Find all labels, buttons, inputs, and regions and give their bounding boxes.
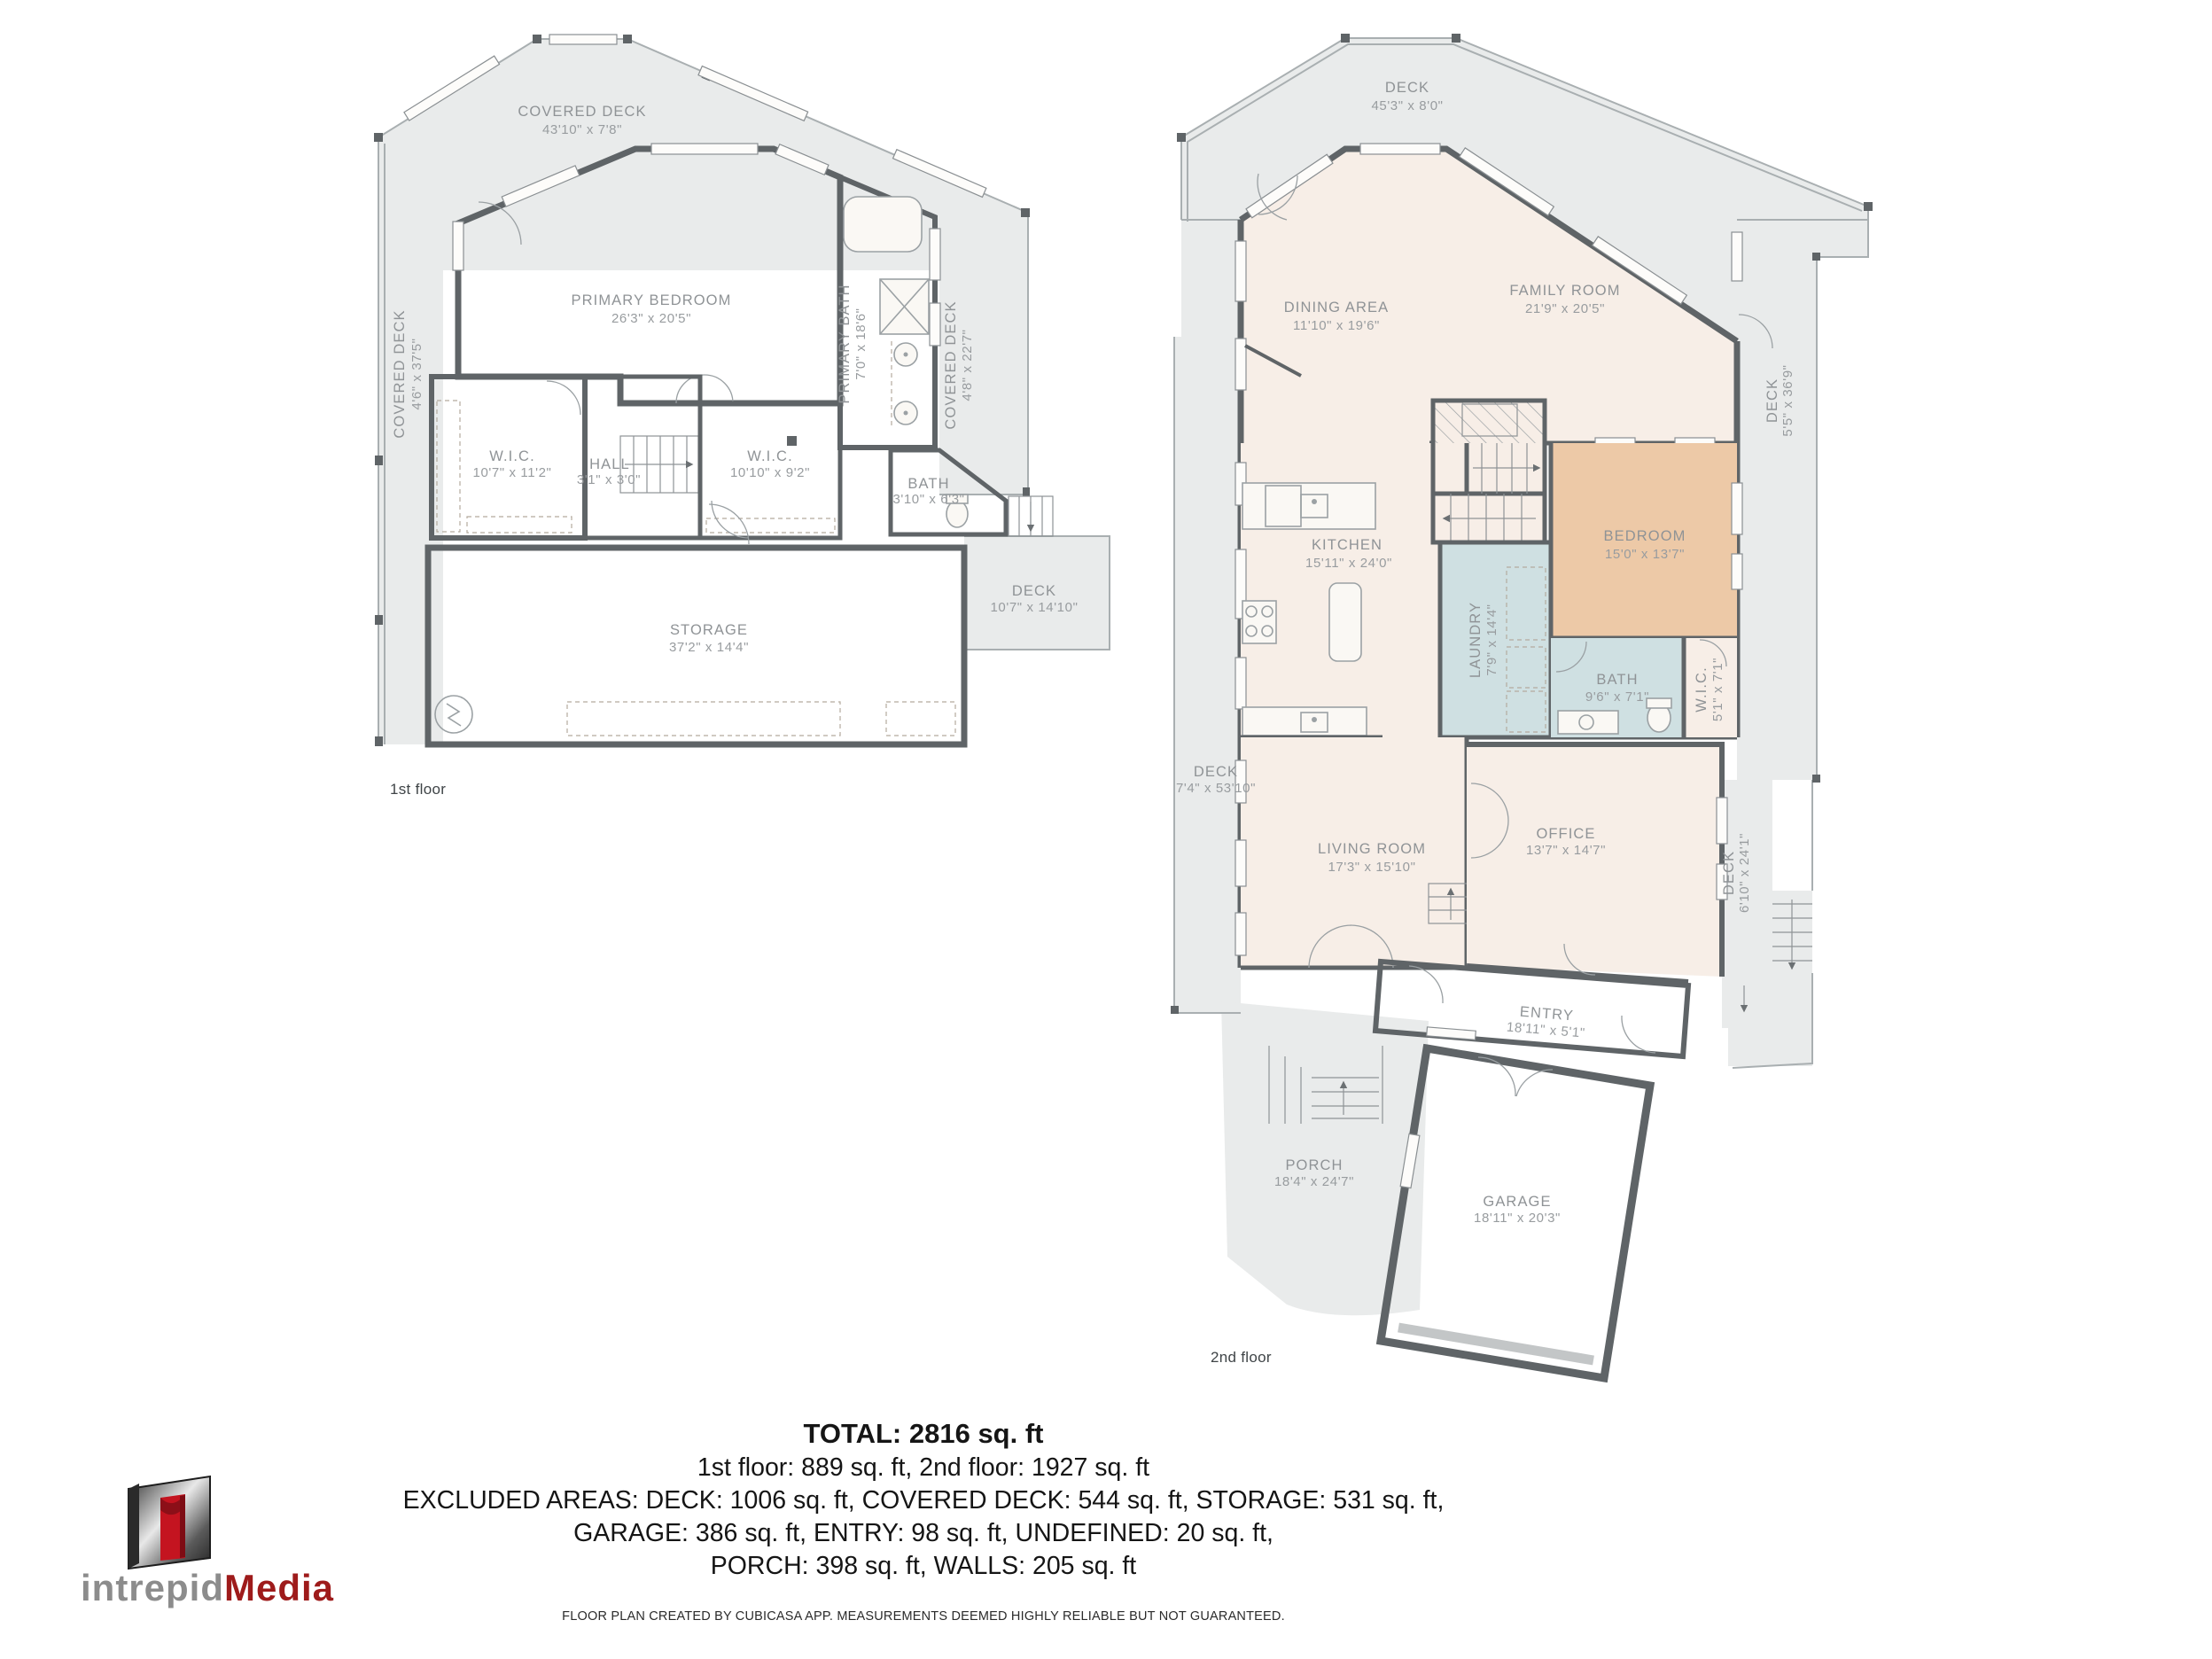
- room-dims: 18'11" x 20'3": [1474, 1211, 1561, 1226]
- intrepid-media-logo: intrepidMedia: [75, 1471, 359, 1613]
- room-label: HALL: [589, 456, 630, 472]
- floor-plan-page: COVERED DECK 43'10" x 7'8" PRIMARY BEDRO…: [0, 0, 2212, 1659]
- room-label: OFFICE: [1536, 826, 1595, 842]
- room-label: BATH: [907, 476, 949, 492]
- room-dims: 5'5" x 36'9": [1780, 364, 1795, 436]
- room-label: KITCHEN: [1312, 537, 1382, 553]
- deck-stairs: [1009, 496, 1053, 536]
- room-dims: 37'2" x 14'4": [669, 640, 749, 655]
- logo-word-red: Media: [224, 1567, 334, 1608]
- logo-cube-icon: [129, 1476, 210, 1569]
- undefined-hatched-area: [1433, 401, 1545, 443]
- room-label: STORAGE: [670, 622, 748, 638]
- floor-label-2nd: 2nd floor: [1211, 1349, 1272, 1366]
- room-dims: 11'10" x 19'6": [1293, 318, 1380, 333]
- svg-text:intrepidMedia: intrepidMedia: [81, 1567, 334, 1608]
- room-label: COVERED DECK: [943, 300, 959, 429]
- room-dims: 15'11" x 24'0": [1305, 556, 1392, 571]
- room-label: PRIMARY BEDROOM: [572, 292, 732, 308]
- first-floor-plan: COVERED DECK 43'10" x 7'8" PRIMARY BEDRO…: [374, 35, 1110, 798]
- kitchen-counter: [1242, 483, 1375, 529]
- vanity: [1558, 711, 1618, 734]
- room-dims: 18'4" x 24'7": [1274, 1174, 1354, 1189]
- room-label: W.I.C.: [489, 448, 535, 464]
- room-dims: 7'9" x 14'4": [1484, 604, 1499, 675]
- room-dims: 18'11" x 5'1": [1506, 1020, 1585, 1041]
- second-floor-plan: DECK 45'3" x 8'0" DINING AREA 11'10" x 1…: [1171, 34, 1873, 1378]
- room-dims: 4'6" x 37'5": [409, 338, 424, 409]
- room-label: DECK: [1721, 851, 1737, 895]
- room-dims: 10'7" x 11'2": [473, 465, 552, 480]
- room-label: DECK: [1764, 378, 1780, 423]
- room-dims: 10'10" x 9'2": [730, 465, 810, 480]
- excluded-areas-3: PORCH: 398 sq. ft, WALLS: 205 sq. ft: [347, 1550, 1499, 1583]
- room-label: GARAGE: [1483, 1194, 1551, 1210]
- room-label: W.I.C.: [1694, 666, 1710, 713]
- room-dims: 43'10" x 7'8": [542, 122, 622, 137]
- excluded-areas-2: GARAGE: 386 sq. ft, ENTRY: 98 sq. ft, UN…: [347, 1517, 1499, 1550]
- room-office: [1467, 744, 1727, 982]
- room-label: COVERED DECK: [392, 309, 408, 438]
- room-label: LAUNDRY: [1468, 602, 1484, 678]
- floor-areas: 1st floor: 889 sq. ft, 2nd floor: 1927 s…: [347, 1452, 1499, 1484]
- room-dims: 3'10" x 6'3": [892, 492, 964, 507]
- room-label: LIVING ROOM: [1318, 841, 1426, 857]
- room-dims: 45'3" x 8'0": [1371, 98, 1443, 113]
- room-dims: 9'6" x 7'1": [1585, 689, 1649, 705]
- stairwell: [1433, 401, 1545, 542]
- room-label: DINING AREA: [1284, 300, 1389, 315]
- kitchen-island: [1329, 583, 1361, 661]
- room-label: BATH: [1596, 672, 1638, 688]
- room-dims: 15'0" x 13'7": [1605, 547, 1685, 562]
- disclaimer: FLOOR PLAN CREATED BY CUBICASA APP. MEAS…: [347, 1609, 1499, 1624]
- room-dims: 3'1" x 3'0": [577, 472, 641, 487]
- room-bath2: [1551, 638, 1684, 737]
- room-dims: 7'0" x 18'6": [853, 308, 868, 379]
- room-dims: 6'10" x 24'1": [1737, 833, 1752, 913]
- total-area: TOTAL: 2816 sq. ft: [347, 1416, 1499, 1452]
- room-dims: 10'7" x 14'10": [990, 600, 1078, 615]
- room-dims: 13'7" x 14'7": [1526, 843, 1606, 858]
- room-dims: 7'4" x 53'10": [1176, 781, 1256, 796]
- room-label: FAMILY ROOM: [1509, 283, 1620, 299]
- room-label: DECK: [1194, 764, 1238, 780]
- room-label: COVERED DECK: [518, 104, 646, 120]
- room-dims: 17'3" x 15'10": [1328, 860, 1415, 875]
- logo-word-gray: intrepid: [81, 1567, 224, 1608]
- garage-door: [1398, 1328, 1593, 1360]
- room-label: DECK: [1385, 80, 1429, 96]
- room-label: PORCH: [1285, 1157, 1343, 1173]
- room-dims: 4'8" x 22'7": [960, 329, 975, 401]
- room-dims: 5'1" x 7'1": [1710, 658, 1725, 721]
- floor-label-1st: 1st floor: [390, 781, 446, 798]
- room-dims: 21'9" x 20'5": [1525, 301, 1605, 316]
- area-summary: TOTAL: 2816 sq. ft 1st floor: 889 sq. ft…: [347, 1416, 1499, 1624]
- room-label: BEDROOM: [1604, 528, 1686, 544]
- room-label: W.I.C.: [747, 448, 793, 464]
- floor-plan-drawing: COVERED DECK 43'10" x 7'8" PRIMARY BEDRO…: [0, 0, 2212, 1659]
- room-dims: 26'3" x 20'5": [611, 311, 691, 326]
- bathtub: [844, 197, 922, 252]
- room-label: DECK: [1012, 583, 1056, 599]
- room-label: PRIMARY BATH: [837, 284, 853, 403]
- excluded-areas-1: EXCLUDED AREAS: DECK: 1006 sq. ft, COVER…: [347, 1484, 1499, 1517]
